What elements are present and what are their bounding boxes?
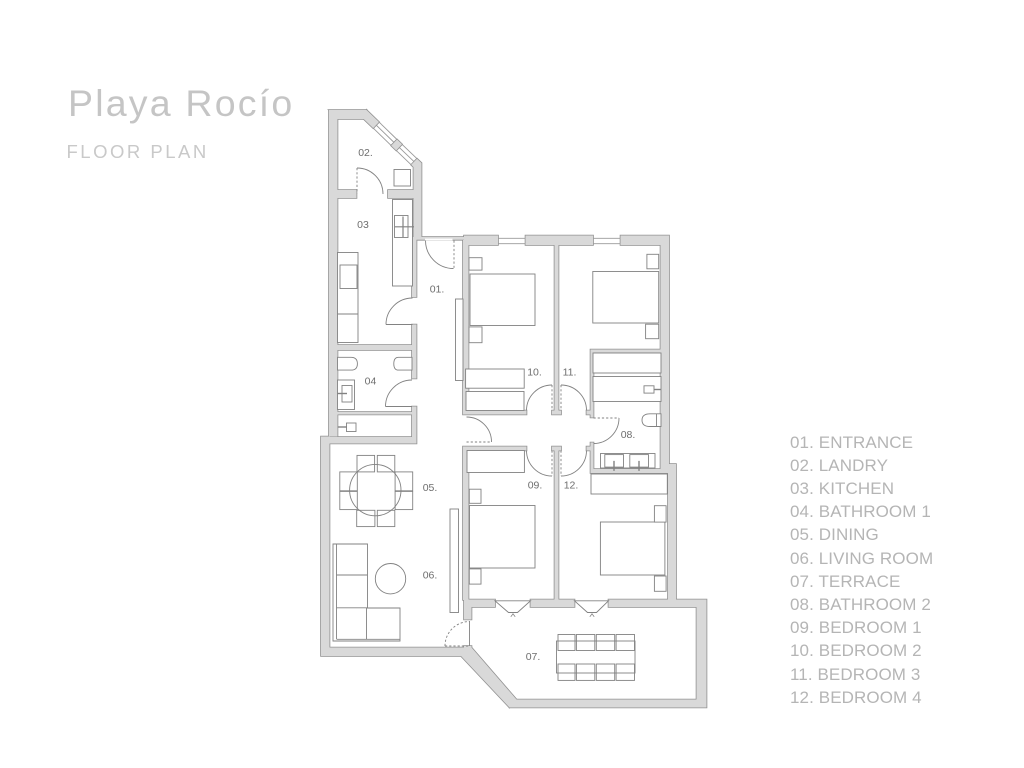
svg-text:08.: 08. [621,429,636,441]
svg-text:09.: 09. [528,480,543,492]
svg-text:04: 04 [365,376,377,388]
svg-text:01.: 01. [430,284,445,296]
svg-text:02.: 02. [358,147,373,159]
svg-text:07.: 07. [526,651,541,663]
svg-text:03: 03 [357,219,369,231]
svg-text:05.: 05. [423,482,438,494]
svg-text:12.: 12. [564,480,579,492]
svg-text:11.: 11. [563,367,577,379]
svg-text:10.: 10. [527,367,542,379]
svg-text:06.: 06. [423,570,438,582]
